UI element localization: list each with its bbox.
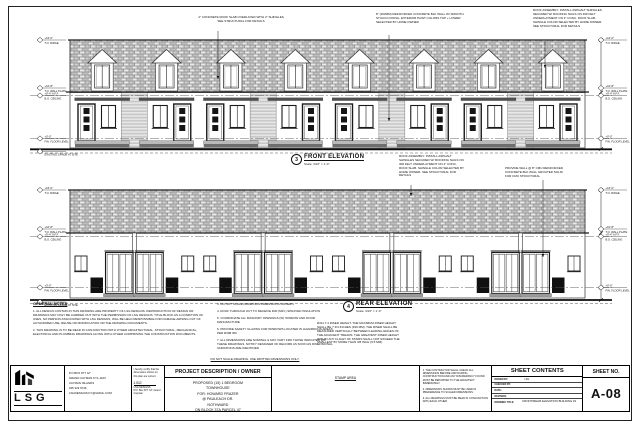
contract-note: 2. DIMENSIONS SHOWN MUST BE USED IN PREF… xyxy=(423,388,489,395)
contract-note: 1. THE CONTRACTOR SHALL CHECK ALL DIMENS… xyxy=(423,369,489,386)
general-note: 2. THIS DRAWING IS TO BE READ IN CONJUNC… xyxy=(33,328,205,336)
address-line: LSGDESIGNS.KY@GMAIL.COM xyxy=(69,391,131,396)
stamp-area-label: STAMP AREA xyxy=(335,376,356,380)
certification-statement: I hereby certify that the dimensions sho… xyxy=(134,368,162,378)
logo-box: LSG DESIGNS xyxy=(11,366,65,411)
logo-text: LSG xyxy=(14,391,62,406)
footer-note: DO NOT SCALE DRAWING. USE WRITTEN DIMENS… xyxy=(185,357,325,361)
title-block: LSG DESIGNS P.O BOX 877 GTGRAND CAYMAN K… xyxy=(10,365,630,412)
field-label: DATE: xyxy=(494,389,524,392)
project-line: ON BLOCK 37A PARCEL 47 xyxy=(165,408,272,411)
project-description-box: PROJECT DESCRIPTION / OWNER PROPOSED (15… xyxy=(165,366,273,411)
rear-elevation-number: 4 xyxy=(343,301,354,312)
sheet-contents-box: SHEET CONTENTS DRAWN BY: LSG CHECKED BY:… xyxy=(492,366,583,411)
general-note: 7. ALL DIMENSIONS ARE NOMINAL & MAY VARY… xyxy=(217,338,335,350)
note-front-wall: 8" (203MM) REINFORCED CONCRETE BLK WALL … xyxy=(376,13,464,25)
general-notes-heading: GENERAL NOTES xyxy=(33,301,67,306)
sheet-number-box: SHEET NO. A-08 xyxy=(583,366,629,411)
general-note: 4. ROOF THROUGH OUT TO RECEIVE R30 (MIN.… xyxy=(217,309,335,313)
general-notes-col1: 1. ALL DESIGN CONTAIN IN THIS DRAWING AR… xyxy=(33,309,205,339)
address-box: P.O BOX 877 GTGRAND CAYMAN KY1-1103CAYMA… xyxy=(65,366,132,411)
project-lines: PROPOSED (15) 1 BEDROOMTOWNHOUSEFOR: HOW… xyxy=(165,378,272,411)
field-value: LSG xyxy=(524,378,529,381)
project-heading: PROJECT DESCRIPTION / OWNER xyxy=(165,366,272,378)
sheet-number-value: A-08 xyxy=(583,386,629,401)
certifier-address: P.O. Box 877 GT, Grand Cayman xyxy=(134,389,162,396)
note-roof-slab: 4" CONCRETE ROOF SLAB OVERLAYED WITH 2" … xyxy=(197,16,285,24)
drawing-title-value: FRONT/REAR ELEVATION BUILDING #1 xyxy=(518,400,580,404)
general-notes-col2: 3. DO NOT SCALE DRAWINGS DIMENSIONS GOVE… xyxy=(217,302,335,353)
drawing-title-row: DRAWING TITLE: FRONT/REAR ELEVATION BUIL… xyxy=(492,399,582,405)
front-elevation-title: FRONT ELEVATION xyxy=(304,154,364,162)
contract-notes-box: 1. THE CONTRACTOR SHALL CHECK ALL DIMENS… xyxy=(420,366,493,411)
field-label: REVISION: xyxy=(494,395,524,398)
general-note: 6. PROVIDE SAFETY GLAZING FOR WINDOWS LO… xyxy=(217,327,335,335)
field-label: CHECKED BY: xyxy=(494,383,524,386)
drawing-title-label: DRAWING TITLE: xyxy=(494,401,518,404)
front-elevation-scale: Scale: 3/16" = 1'-0" xyxy=(304,162,329,166)
field-label: DRAWN BY: xyxy=(494,378,524,381)
rear-elevation-title: REAR ELEVATION xyxy=(356,301,412,309)
note-roof-assembly-front: ROOF ASSEMBLY: INSTALL ASPHALT SHINGLES … xyxy=(533,9,603,28)
general-note: 3. DO NOT SCALE DRAWINGS DIMENSIONS GOVE… xyxy=(217,302,335,306)
note-roof-assembly-rear: ROOF ASSEMBLY: INSTALL ASPHALT SHINGLES … xyxy=(399,155,465,178)
contract-note: 3. ALL DRAWINGS MUST BE READ IN CONJUNCT… xyxy=(423,397,489,404)
general-note: 1. ALL DESIGN CONTAIN IN THIS DRAWING AR… xyxy=(33,309,205,325)
general-note: 5. COORDINATE ALL MASONRY OPENINGS (W) W… xyxy=(217,316,335,324)
note-rear-wall: PROVIDE WALL @ 8" CMU REINFORCED CONCRET… xyxy=(505,167,569,179)
rear-elevation-scale: Scale: 3/16" = 1'-0" xyxy=(356,309,381,313)
drawing-sheet: +16'-0"T.O. RIDGE+10'-8"T.O. WALL PLATE+… xyxy=(0,0,640,427)
certification-box: I hereby certify that the dimensions sho… xyxy=(132,366,165,411)
sheet-number-heading: SHEET NO. xyxy=(583,366,629,378)
stamp-area-box: STAMP AREA xyxy=(272,366,420,411)
front-elevation-number: 3 xyxy=(291,154,302,165)
sheet-contents-heading: SHEET CONTENTS xyxy=(492,366,582,377)
lsg-logo-icon xyxy=(14,368,40,385)
